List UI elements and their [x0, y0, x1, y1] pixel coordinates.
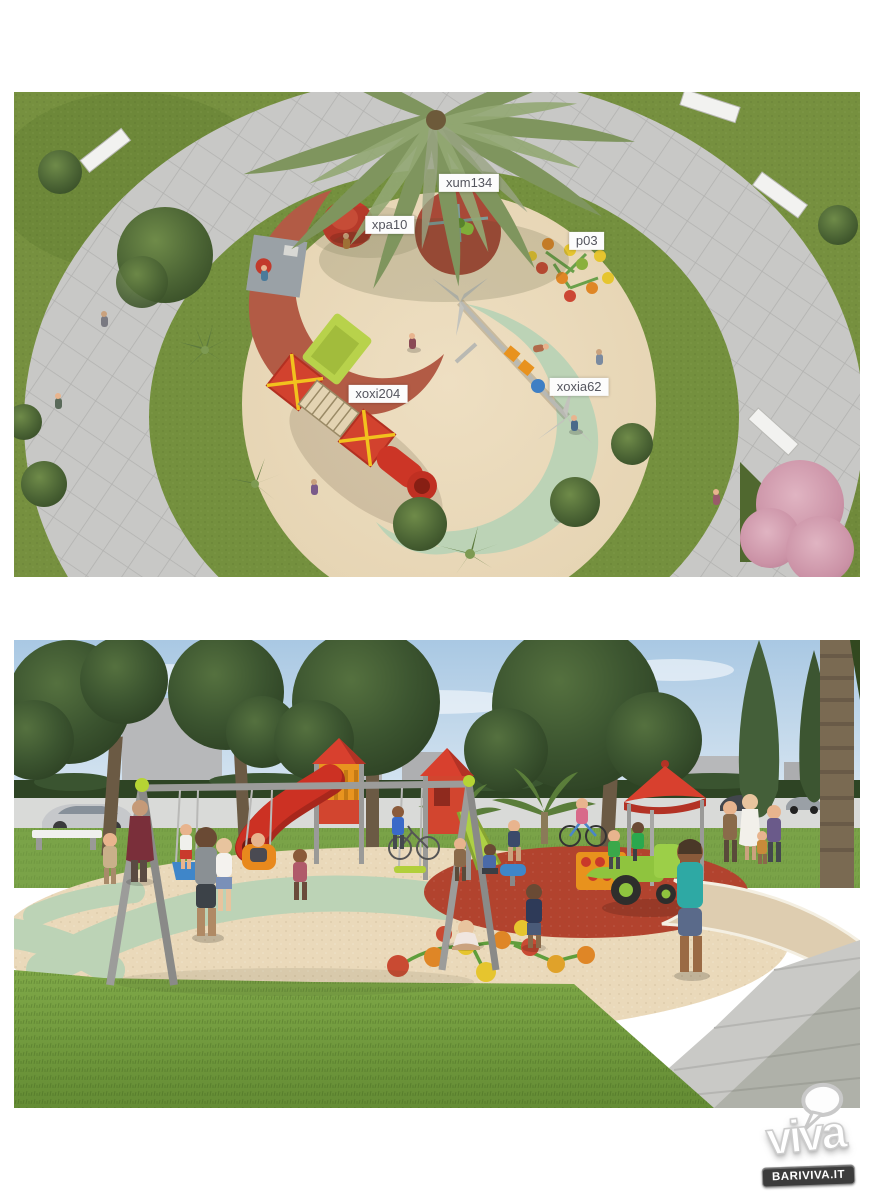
bariviva-logo: viva BARIVIVA.IT — [738, 1082, 870, 1194]
aerial-playground-render: xum134 xpa10 p03 xoxi204 xoxia62 — [14, 92, 860, 577]
perspective-playground-render — [14, 640, 860, 1108]
palm-trunk — [820, 640, 860, 888]
equipment-label-xpa10: xpa10 — [365, 216, 414, 234]
equipment-label-p03: p03 — [569, 232, 605, 250]
equipment-label-xum134: xum134 — [439, 174, 499, 192]
aerial-scene — [14, 92, 860, 577]
equipment-label-xoxi204: xoxi204 — [348, 385, 407, 403]
page: xum134 xpa10 p03 xoxi204 xoxia62 — [0, 0, 874, 1200]
perspective-scene — [14, 640, 860, 1108]
equipment-label-xoxia62: xoxia62 — [550, 378, 609, 396]
logo-wordmark: viva — [744, 1102, 867, 1168]
logo-site-badge: BARIVIVA.IT — [762, 1164, 856, 1187]
